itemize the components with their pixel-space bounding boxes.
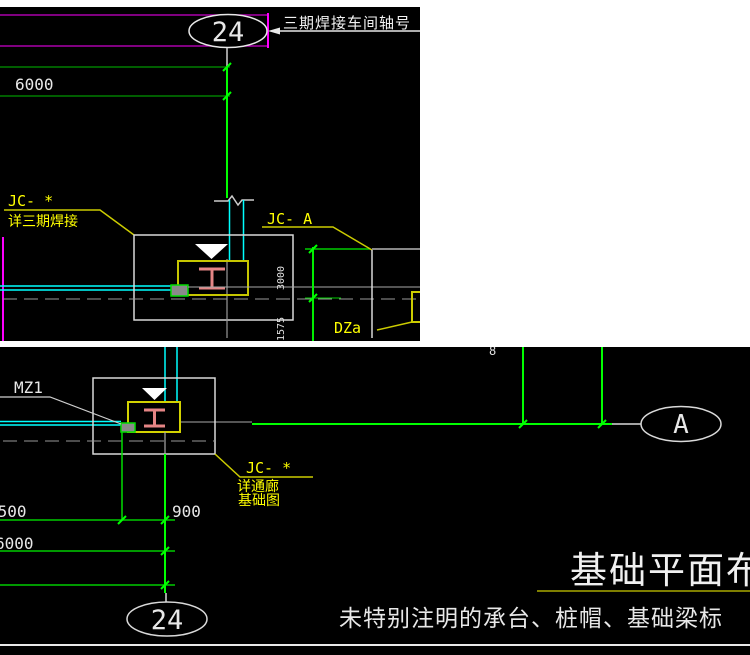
dim-6000-label: 6000 — [0, 534, 34, 553]
axis-note-label: 三期焊接车间轴号 — [283, 15, 411, 32]
dim-1500-label: 1500 — [0, 502, 27, 521]
bottom-viewport-canvas[interactable]: 8 A MZ1 JC- * 详通廊 基 — [0, 347, 750, 655]
dim-900-label: 900 — [172, 502, 201, 521]
axis-bubble-24-label: 24 — [212, 17, 245, 48]
top-viewport-canvas[interactable]: 24 三期焊接车间轴号 6000 JC- * 详三期焊接 — [0, 7, 420, 341]
axis-bubble-24-label: 24 — [151, 605, 184, 636]
mz1-label: MZ1 — [14, 378, 43, 397]
jc-star-label: JC- * — [8, 192, 53, 210]
drawing-title: 基础平面布 — [570, 551, 750, 592]
jc-star-label: JC- * — [246, 459, 291, 477]
cad-screenshot-page: 24 三期焊接车间轴号 6000 JC- * 详三期焊接 — [0, 0, 750, 655]
dim-rotated-upper-label: 3000 — [276, 266, 287, 290]
jc-star-sub-label: 详三期焊接 — [8, 213, 78, 229]
anchor-block — [171, 285, 188, 296]
jc-a-label: JC- A — [267, 210, 312, 228]
anchor-block — [121, 423, 135, 432]
top-viewport-background — [0, 7, 420, 341]
dza-label: DZa — [334, 319, 361, 337]
partial-dim-digit-label: 8 — [489, 347, 496, 358]
dim-rotated-lower-label: 1575 — [276, 317, 287, 341]
drawing-note: 未特别注明的承台、桩帽、基础梁标 — [339, 606, 723, 631]
dim-6000-label: 6000 — [15, 75, 54, 94]
axis-bubble-a-label: A — [673, 410, 689, 440]
jc-star-sub-label-2: 基础图 — [238, 492, 280, 508]
